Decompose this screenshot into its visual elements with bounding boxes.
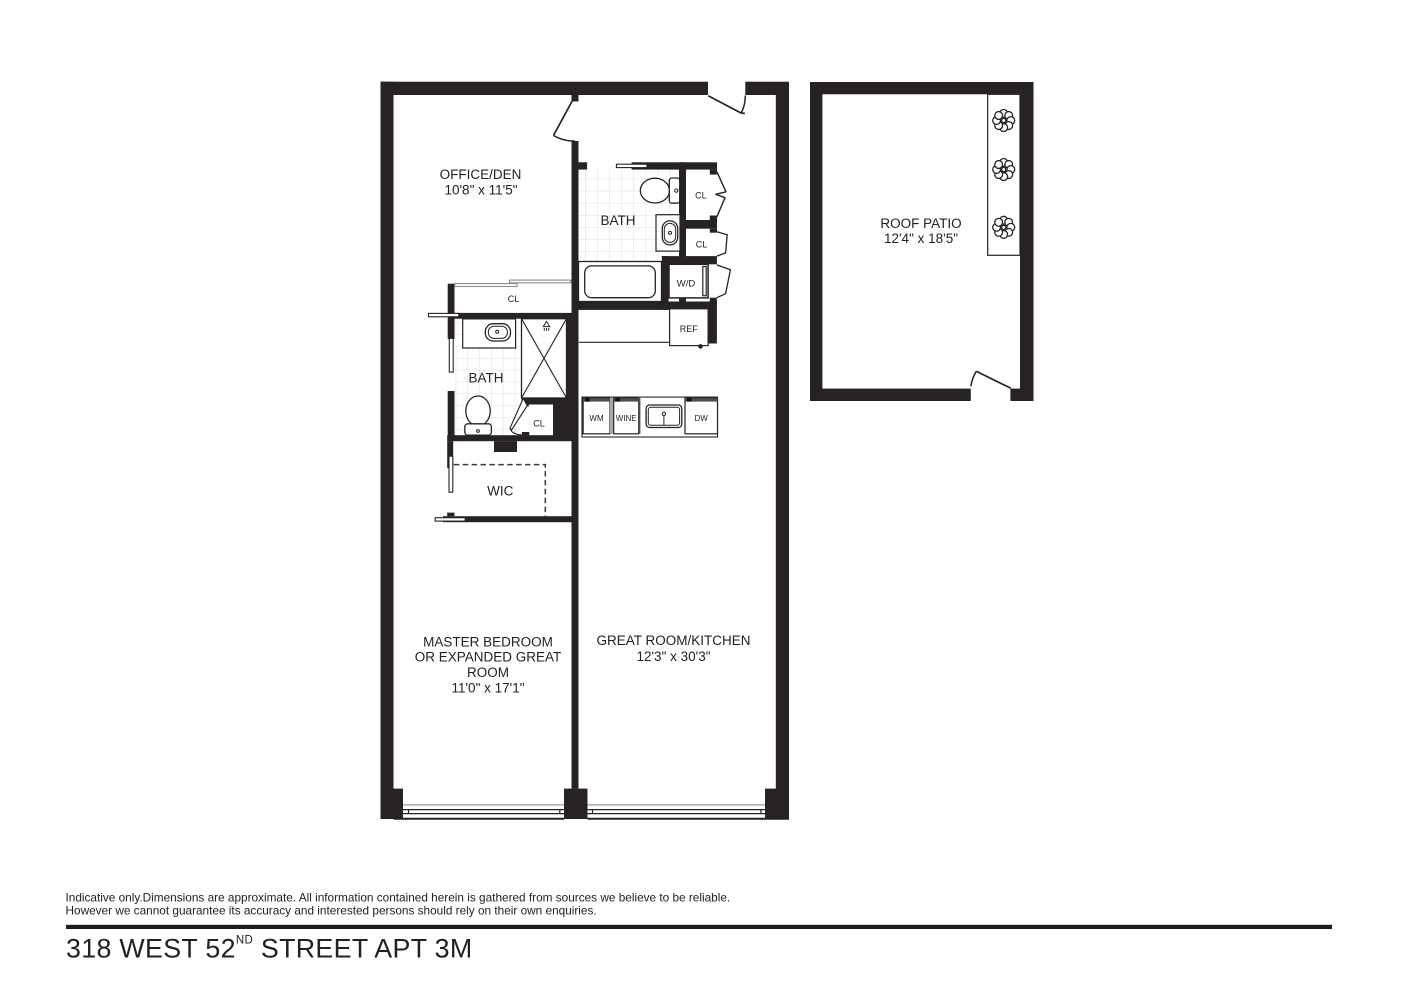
svg-text:ROOF PATIO: ROOF PATIO [880,216,961,231]
svg-text:BATH: BATH [600,213,635,228]
svg-text:12'4" x 18'5": 12'4" x 18'5" [884,231,958,246]
svg-text:DW: DW [695,414,709,423]
svg-text:CL: CL [696,239,708,249]
svg-text:11'0" x 17'1": 11'0" x 17'1" [451,680,524,695]
svg-text:However we cannot guarantee it: However we cannot guarantee its accuracy… [66,904,597,918]
svg-text:318 WEST 52ND STREET APT 3M: 318 WEST 52ND STREET APT 3M [66,933,473,963]
svg-text:WIC: WIC [487,483,513,498]
svg-text:OFFICE/DEN: OFFICE/DEN [440,167,522,182]
svg-text:WINE: WINE [616,414,637,423]
svg-text:CL: CL [508,294,520,304]
svg-text:WM: WM [589,414,604,423]
svg-text:OR EXPANDED GREAT: OR EXPANDED GREAT [415,650,562,665]
svg-text:12'3" x 30'3": 12'3" x 30'3" [636,649,710,664]
svg-text:CL: CL [695,191,707,201]
svg-text:GREAT ROOM/KITCHEN: GREAT ROOM/KITCHEN [596,633,750,648]
svg-text:MASTER BEDROOM: MASTER BEDROOM [423,634,553,649]
svg-text:10'8" x 11'5": 10'8" x 11'5" [444,183,517,198]
svg-text:W/D: W/D [677,278,696,289]
svg-text:Indicative only.Dimensions are: Indicative only.Dimensions are approxima… [66,891,731,905]
svg-text:CL: CL [533,419,545,429]
svg-text:REF: REF [680,324,699,334]
svg-text:BATH: BATH [468,370,503,385]
svg-text:ROOM: ROOM [467,665,509,680]
